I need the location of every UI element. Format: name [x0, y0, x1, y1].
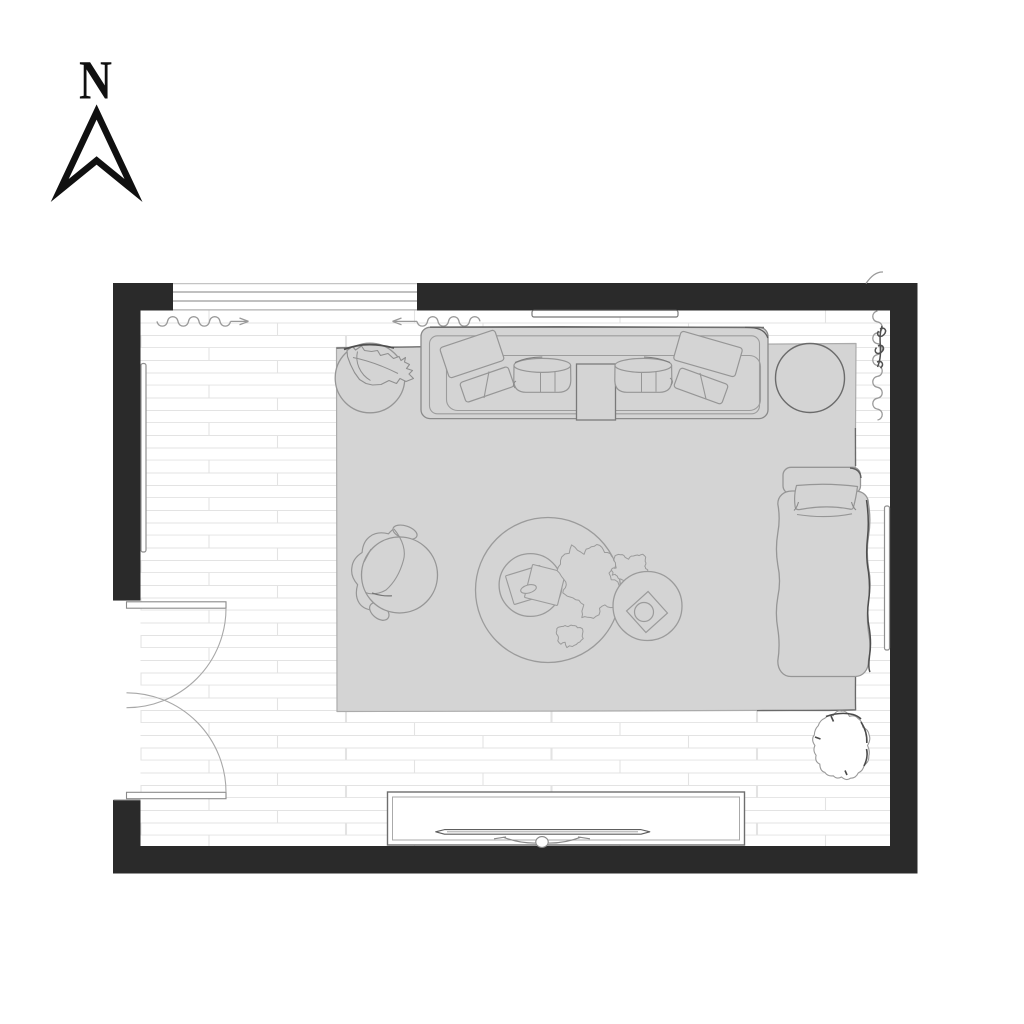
- svg-text:N: N: [79, 50, 112, 111]
